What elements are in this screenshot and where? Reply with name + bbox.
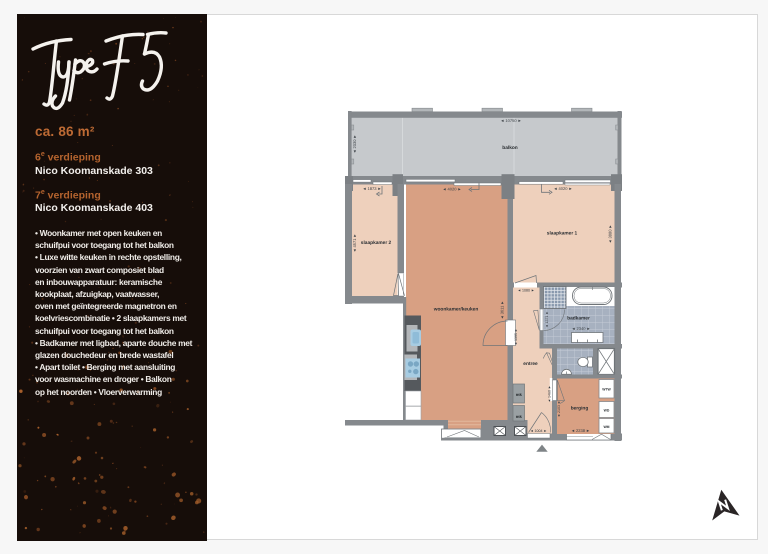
svg-text:entree: entree — [523, 361, 538, 367]
svg-text:◄ 3880 ►: ◄ 3880 ► — [608, 224, 613, 243]
svg-text:◄ 2103 ►: ◄ 2103 ► — [557, 400, 561, 417]
svg-text:◄ 1873 ►: ◄ 1873 ► — [362, 186, 381, 191]
svg-text:◄ 1004 ►: ◄ 1004 ► — [530, 429, 547, 433]
svg-text:berging: berging — [571, 406, 589, 412]
svg-text:slaapkamer 2: slaapkamer 2 — [361, 240, 392, 246]
svg-text:◄ 4020 ►: ◄ 4020 ► — [553, 186, 572, 191]
svg-text:◄ 10750 ►: ◄ 10750 ► — [500, 118, 521, 123]
svg-text:balkon: balkon — [502, 145, 518, 151]
svg-text:mk: mk — [516, 392, 523, 397]
svg-text:WTW: WTW — [602, 388, 611, 392]
svg-text:woonkamer/keuken: woonkamer/keuken — [433, 307, 479, 313]
svg-text:◄ 4020 ►: ◄ 4020 ► — [442, 187, 461, 192]
svg-text:mk: mk — [516, 414, 523, 419]
svg-text:WD: WD — [604, 409, 610, 413]
svg-text:slaapkamer 1: slaapkamer 1 — [547, 231, 578, 237]
svg-text:◄ 1371 ►: ◄ 1371 ► — [545, 311, 549, 328]
svg-text:◄ 3611 ►: ◄ 3611 ► — [500, 301, 505, 320]
svg-text:◄ 4571 ►: ◄ 4571 ► — [352, 233, 357, 252]
svg-text:◄ 1395 ►: ◄ 1395 ► — [514, 328, 518, 345]
svg-text:◄ 1080 ►: ◄ 1080 ► — [517, 289, 534, 293]
svg-text:◄ 2340 ►: ◄ 2340 ► — [571, 326, 590, 331]
svg-text:badkamer: badkamer — [567, 316, 590, 322]
svg-text:◄ 2238 ►: ◄ 2238 ► — [571, 428, 590, 433]
svg-text:WM: WM — [603, 425, 609, 429]
svg-text:◄ 2030 ►: ◄ 2030 ► — [352, 134, 357, 153]
svg-text:◄ 1460 ►: ◄ 1460 ► — [548, 385, 552, 402]
